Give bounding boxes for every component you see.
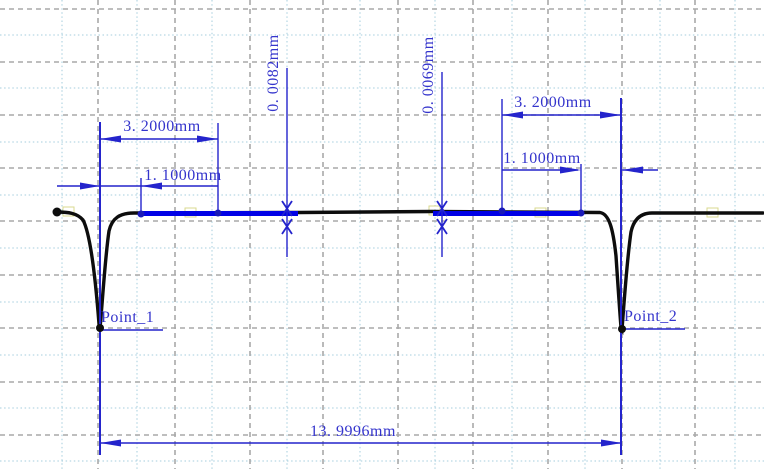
profile-chart-svg: 3. 2000mm 1. 1000mm 3. 2000mm 1. 1000mm … <box>0 0 764 469</box>
dimension-label: 1. 1000mm <box>144 167 221 184</box>
dimension-right-inner-width: 1. 1000mm <box>502 150 658 174</box>
dimension-label: 0. 0069mm <box>420 36 437 113</box>
dimension-label: 3. 2000mm <box>123 118 200 135</box>
dimension-label: 0. 0082mm <box>265 34 282 111</box>
arrowhead-right-icon <box>601 440 622 447</box>
point1-dot <box>96 324 104 332</box>
point1-label: Point_1 <box>101 309 154 326</box>
point-labels: Point_1 Point_2 <box>100 308 685 330</box>
dimension-label: 13. 9996mm <box>310 423 396 440</box>
point2-label: Point_2 <box>624 308 677 325</box>
measure-node-dot <box>215 210 222 217</box>
dimension-right-step-height: 0. 0069mm <box>420 36 447 257</box>
measure-node-dot <box>578 210 585 217</box>
arrowhead-right-icon <box>197 136 218 143</box>
measure-node-dot <box>499 208 506 215</box>
arrowhead-left-icon <box>502 112 523 119</box>
measure-node-dot <box>138 211 145 218</box>
point2-dot <box>618 325 626 333</box>
dimension-label: 3. 2000mm <box>514 94 591 111</box>
arrowhead-left-icon <box>100 136 121 143</box>
dimension-left-inner-width: 1. 1000mm <box>57 167 222 190</box>
dimension-label: 1. 1000mm <box>503 150 580 167</box>
dimension-left-step-height: 0. 0082mm <box>265 34 292 257</box>
arrowhead-left-icon <box>100 440 121 447</box>
trace-start-dot <box>53 208 62 217</box>
dimension-left-width: 3. 2000mm <box>100 118 218 143</box>
grid-lines <box>0 0 764 469</box>
dimension-right-width: 3. 2000mm <box>502 94 621 119</box>
profile-measurement-chart: 3. 2000mm 1. 1000mm 3. 2000mm 1. 1000mm … <box>0 0 764 469</box>
arrowhead-right-icon <box>80 183 100 190</box>
arrowhead-right-icon <box>600 112 621 119</box>
